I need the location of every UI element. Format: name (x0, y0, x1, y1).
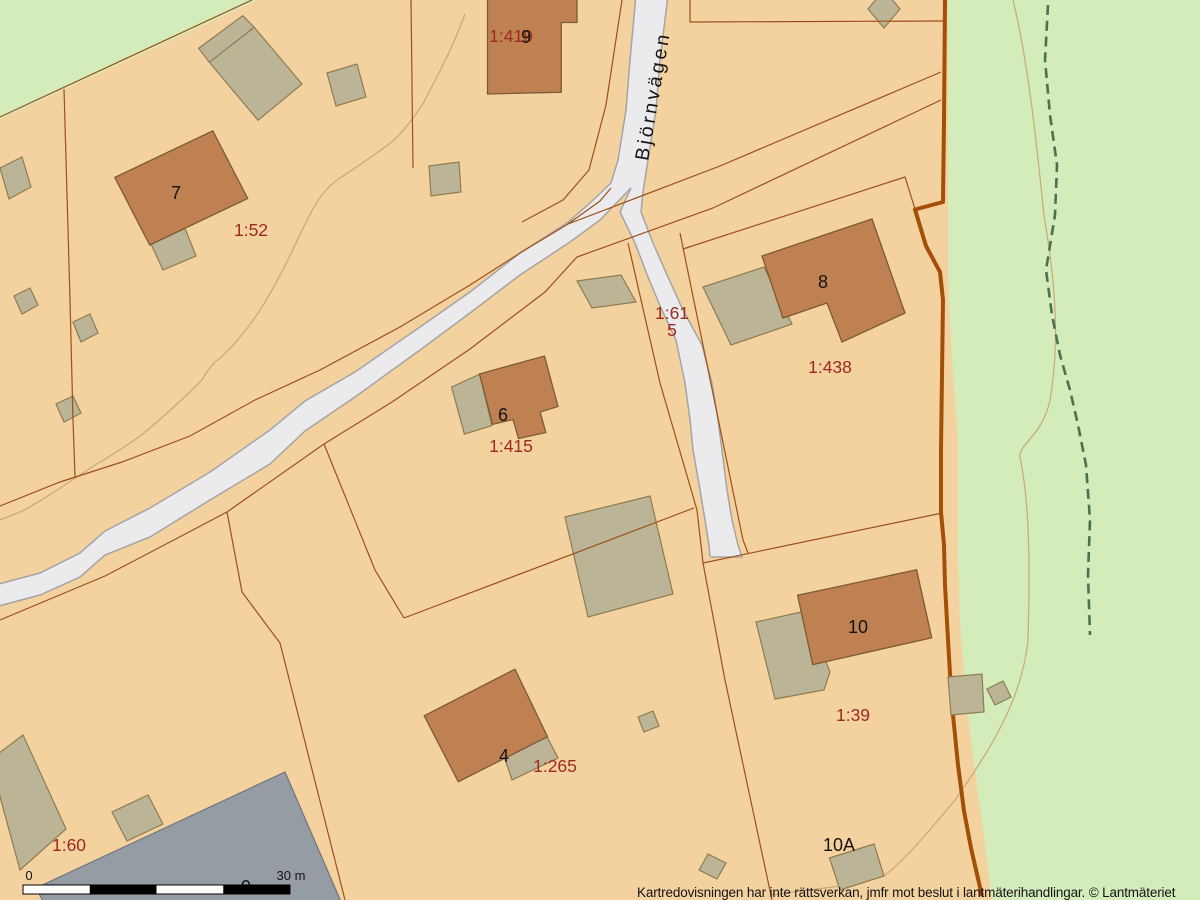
svg-text:4: 4 (499, 746, 509, 766)
svg-text:1:265: 1:265 (533, 756, 577, 776)
svg-text:1:39: 1:39 (836, 705, 870, 725)
svg-text:10A: 10A (823, 835, 855, 855)
svg-text:10: 10 (848, 617, 868, 637)
svg-text:Kartredovisningen har inte rät: Kartredovisningen har inte rättsverkan, … (637, 885, 1176, 900)
svg-text:8: 8 (818, 272, 828, 292)
svg-text:6: 6 (498, 405, 508, 425)
svg-text:1:52: 1:52 (234, 220, 268, 240)
svg-text:1:415: 1:415 (489, 436, 533, 456)
svg-text:1:438: 1:438 (808, 357, 852, 377)
svg-text:9: 9 (521, 27, 531, 47)
svg-text:1:60: 1:60 (52, 835, 86, 855)
svg-text:7: 7 (171, 183, 181, 203)
svg-text:0: 0 (25, 868, 32, 883)
svg-text:5: 5 (667, 320, 677, 340)
svg-text:30 m: 30 m (277, 868, 306, 883)
